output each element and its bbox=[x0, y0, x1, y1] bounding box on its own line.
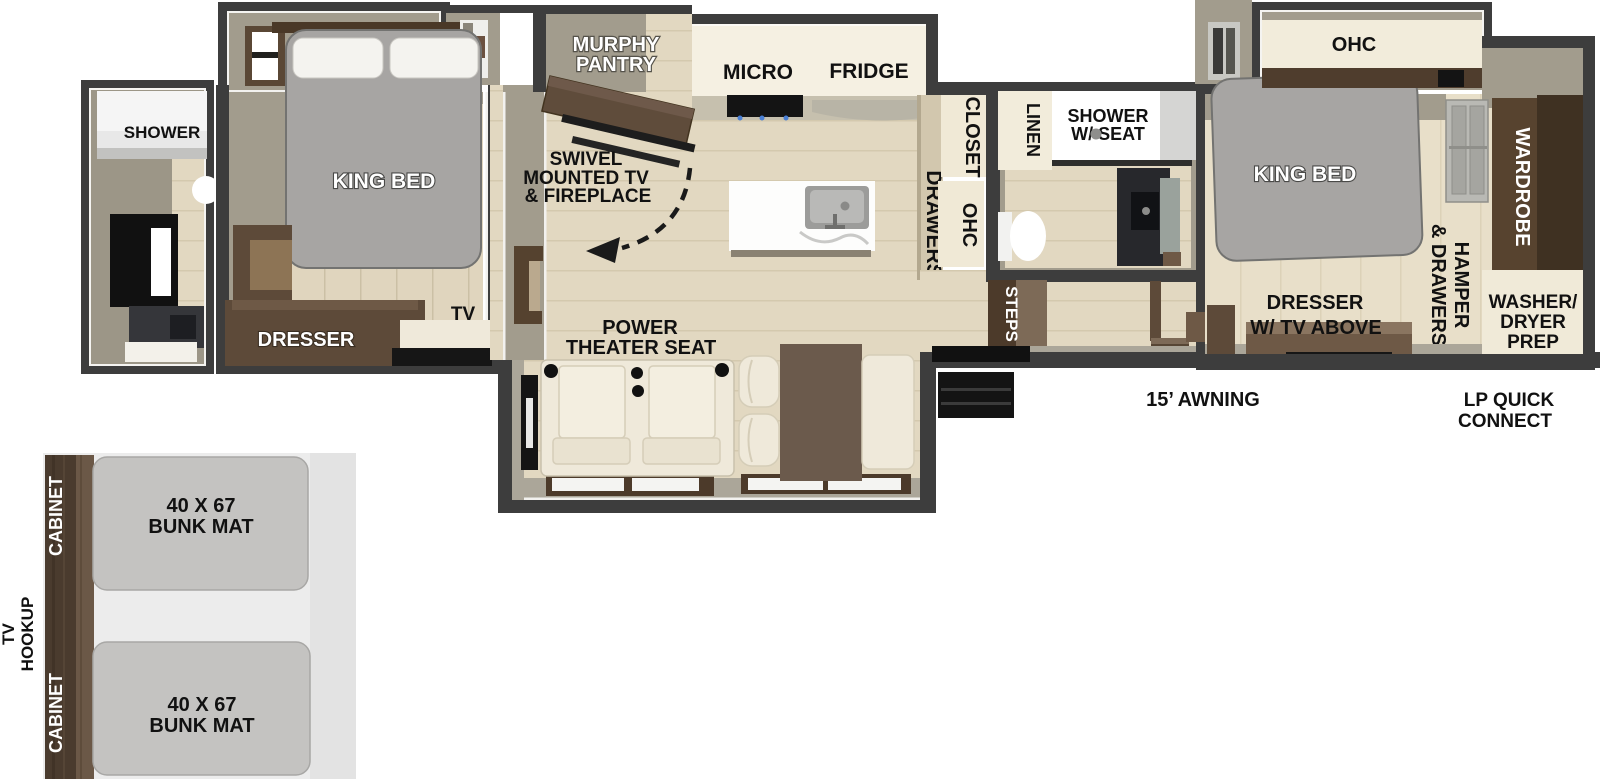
svg-text:HAMPER: HAMPER bbox=[1450, 242, 1472, 329]
svg-text:DRESSER: DRESSER bbox=[1267, 292, 1364, 314]
svg-text:40 X 67: 40 X 67 bbox=[168, 694, 237, 716]
svg-text:DRYER: DRYER bbox=[1500, 312, 1566, 333]
svg-text:LINEN: LINEN bbox=[1023, 103, 1043, 157]
svg-text:OHC: OHC bbox=[1332, 34, 1376, 56]
svg-text:FRIDGE: FRIDGE bbox=[829, 60, 908, 83]
svg-text:OHC: OHC bbox=[958, 203, 980, 247]
svg-text:15’ AWNING: 15’ AWNING bbox=[1146, 389, 1260, 411]
svg-text:KING BED: KING BED bbox=[1254, 163, 1357, 186]
svg-text:DRESSER: DRESSER bbox=[258, 329, 355, 351]
svg-text:CONNECT: CONNECT bbox=[1458, 411, 1552, 432]
svg-text:W/ SEAT: W/ SEAT bbox=[1071, 124, 1145, 144]
svg-text:HOOKUP: HOOKUP bbox=[18, 597, 37, 672]
svg-text:40 X 67: 40 X 67 bbox=[167, 495, 236, 517]
svg-text:BUNK MAT: BUNK MAT bbox=[148, 516, 253, 538]
svg-text:SHOWER: SHOWER bbox=[124, 123, 201, 142]
svg-text:MURPHY: MURPHY bbox=[573, 34, 660, 56]
svg-text:SWIVEL: SWIVEL bbox=[550, 149, 623, 170]
svg-text:TV: TV bbox=[451, 304, 476, 325]
svg-text:CABINET: CABINET bbox=[46, 673, 66, 753]
svg-text:STEPS: STEPS bbox=[1002, 286, 1021, 342]
svg-text:CLOSET: CLOSET bbox=[961, 96, 983, 177]
svg-text:POWER: POWER bbox=[602, 317, 678, 339]
svg-text:LP QUICK: LP QUICK bbox=[1464, 390, 1555, 411]
svg-text:& FIREPLACE: & FIREPLACE bbox=[525, 186, 652, 207]
svg-text:CABINET: CABINET bbox=[46, 476, 66, 556]
svg-text:THEATER SEAT: THEATER SEAT bbox=[566, 337, 716, 359]
svg-text:PANTRY: PANTRY bbox=[576, 54, 657, 76]
svg-text:WARDROBE: WARDROBE bbox=[1511, 128, 1533, 247]
svg-text:KING BED: KING BED bbox=[333, 170, 436, 193]
svg-text:MICRO: MICRO bbox=[723, 61, 793, 84]
svg-text:WASHER/: WASHER/ bbox=[1489, 292, 1578, 313]
svg-text:& DRAWERS: & DRAWERS bbox=[1427, 224, 1449, 346]
svg-text:PREP: PREP bbox=[1507, 332, 1559, 353]
svg-text:BUNK MAT: BUNK MAT bbox=[149, 715, 254, 737]
svg-text:W/ TV ABOVE: W/ TV ABOVE bbox=[1250, 317, 1381, 339]
svg-text:TV: TV bbox=[0, 622, 18, 644]
svg-text:SHOWER: SHOWER bbox=[1068, 106, 1149, 126]
